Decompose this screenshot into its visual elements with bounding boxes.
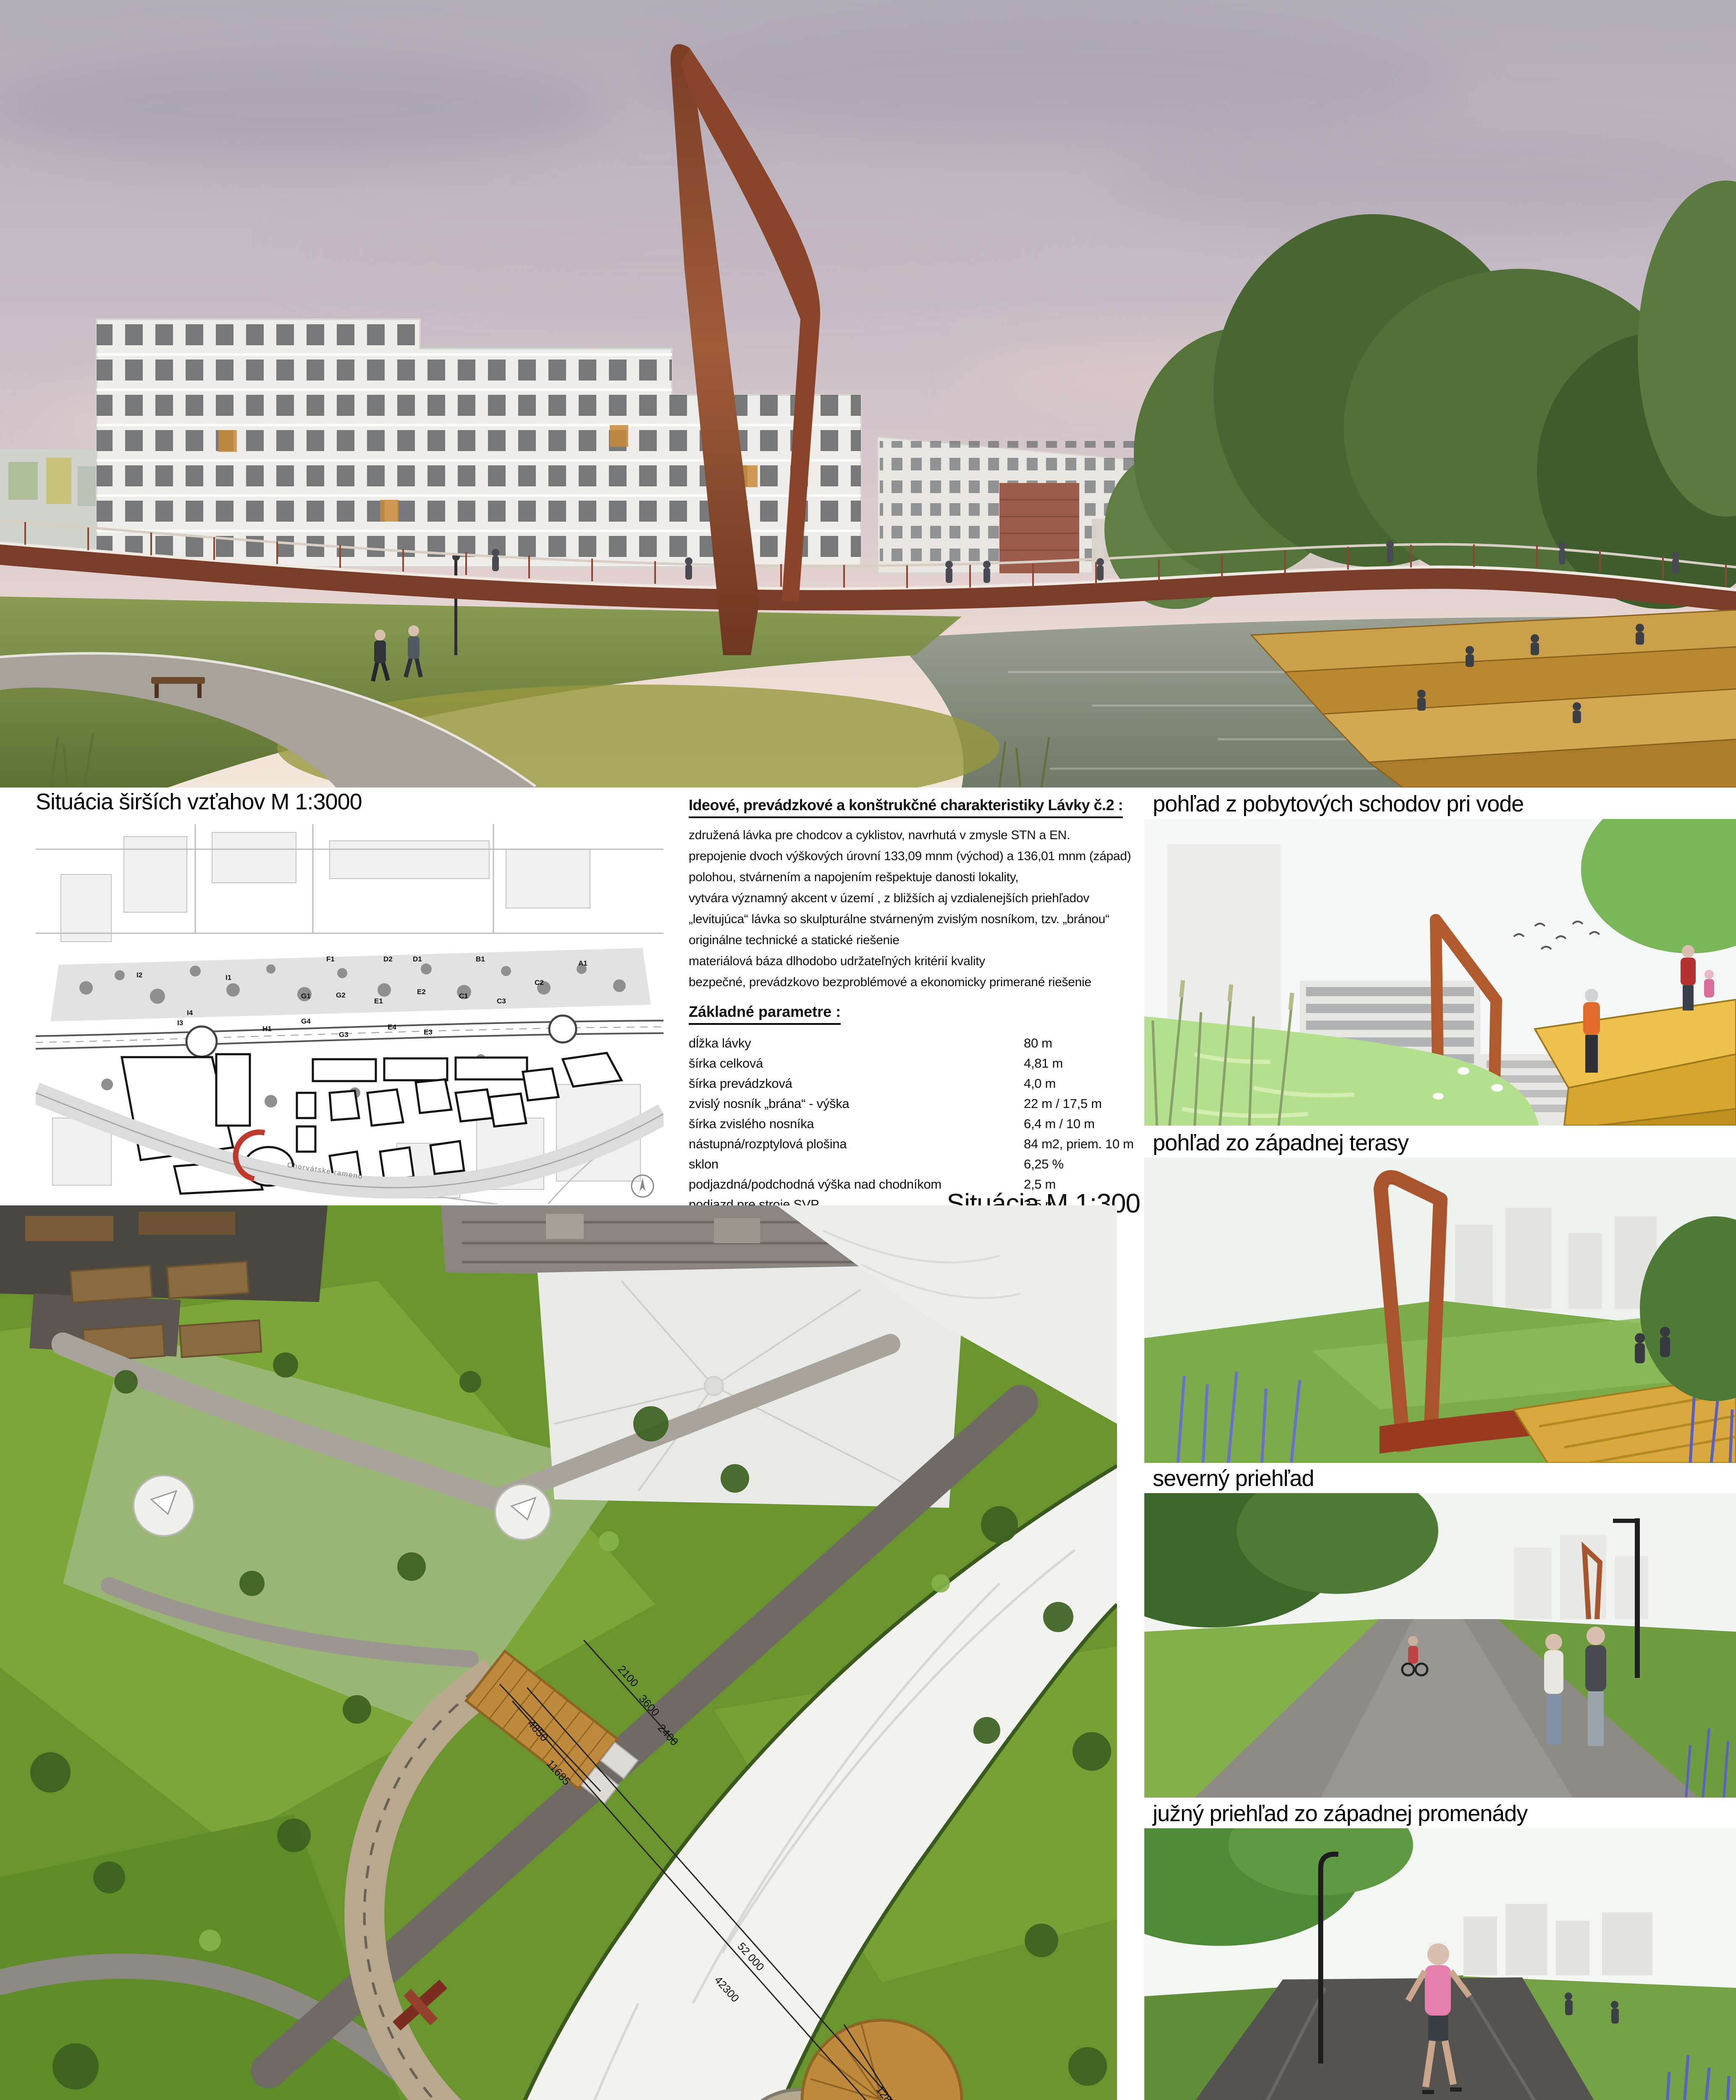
render-steps-at-water	[1144, 819, 1736, 1126]
render1-caption: pohľad z pobytových schodov pri vode	[1153, 791, 1524, 817]
characteristic-item: materiálová báza dlhodobo udržateľných k…	[689, 954, 1123, 975]
block-label: A1	[578, 959, 587, 968]
parameter-label: šírka celková	[689, 1056, 763, 1071]
site-plan-1-300-graphic: 4850 2100 3600 2400 11685 52 000 42300 5…	[0, 1205, 1117, 2100]
block-label: E4	[388, 1023, 396, 1032]
block-label: I4	[187, 1009, 193, 1017]
parameter-value: 6,4 m / 10 m	[1024, 1116, 1095, 1131]
block-label: E1	[374, 997, 383, 1005]
parameter-label: zvislý nosník „brána“ - výška	[689, 1096, 849, 1111]
block-label: E2	[417, 988, 426, 996]
block-label: G3	[339, 1031, 349, 1039]
block-label: C3	[497, 997, 506, 1005]
block-label: E3	[424, 1028, 433, 1037]
block-label: F1	[326, 955, 335, 963]
render2-caption: pohľad zo západnej terasy	[1153, 1130, 1408, 1156]
characteristic-item: vytvára významný akcent v území , z bliž…	[689, 891, 1123, 912]
block-label: I2	[136, 971, 142, 979]
parameter-value: 4,0 m	[1024, 1076, 1056, 1091]
parameter-row: šírka celková 4,81 m	[689, 1056, 1123, 1076]
parameter-value: 4,81 m	[1024, 1056, 1063, 1071]
block-label: I1	[226, 974, 231, 982]
tensile-canopy	[538, 1264, 966, 1508]
parameter-value: 80 m	[1024, 1036, 1052, 1051]
block-label: D1	[413, 955, 422, 963]
parameter-label: dĺžka lávky	[689, 1036, 751, 1050]
block-label: G1	[301, 992, 311, 1000]
characteristic-item: originálne technické a statické riešenie	[689, 933, 1123, 954]
parameter-label: šírka prevádzková	[689, 1076, 792, 1091]
site-plan-1-300: 4850 2100 3600 2400 11685 52 000 42300 5…	[0, 1205, 1117, 2100]
characteristics-heading: Ideové, prevádzkové a konštrukčné charak…	[689, 796, 1123, 818]
block-label: C1	[459, 992, 468, 1000]
parameter-row: dĺžka lávky 80 m	[689, 1036, 1123, 1056]
lamp-post	[1635, 1518, 1640, 1678]
characteristic-item: prepojenie dvoch výškových úrovní 133,09…	[689, 849, 1123, 870]
parameter-row: šírka zvislého nosníka 6,4 m / 10 m	[689, 1116, 1123, 1137]
parameter-value: 22 m / 17,5 m	[1024, 1096, 1102, 1111]
competition-poster: Situácia širších vzťahov M 1:3000	[0, 0, 1736, 2100]
characteristic-item: polohou, stvárnením a napojením rešpektu…	[689, 870, 1123, 891]
hero-render	[0, 0, 1736, 787]
characteristic-item: bezpečné, prevádzkovo bezproblémové a ek…	[689, 975, 1123, 996]
site-plan-1-3000-graphic	[36, 824, 663, 1204]
site-plan-1-3000: Chorvátske rameno I2 I1 I3 I4 H1 G1 G4 G…	[36, 824, 663, 1204]
parameter-row: šírka prevádzková 4,0 m	[689, 1076, 1123, 1096]
block-label: I3	[177, 1019, 183, 1027]
block-label: B1	[476, 955, 485, 963]
render4-caption: južný priehľad zo západnej promenády	[1153, 1801, 1527, 1827]
render-south-promenade	[1144, 1828, 1736, 2100]
parameter-row: nástupná/rozptylová plošina 84 m2, priem…	[689, 1137, 1123, 1157]
distant-buildings-left	[0, 449, 109, 550]
parameter-value: 84 m2, priem. 10 m	[1024, 1137, 1134, 1152]
render-west-terrace	[1144, 1158, 1736, 1463]
parameter-row: sklon 6,25 %	[689, 1157, 1123, 1177]
parameter-value: 6,25 %	[1024, 1157, 1064, 1172]
block-label: H1	[262, 1025, 272, 1033]
characteristic-item: združená lávka pre chodcov a cyklistov, …	[689, 828, 1123, 849]
parameter-label: sklon	[689, 1157, 719, 1171]
characteristics-bullets: združená lávka pre chodcov a cyklistov, …	[689, 828, 1123, 996]
render-north-view	[1144, 1493, 1736, 1798]
block-label: C2	[535, 979, 544, 987]
left-plan-caption: Situácia širších vzťahov M 1:3000	[36, 789, 362, 815]
characteristic-item: „levitujúca“ lávka so skulpturálne stvár…	[689, 912, 1123, 933]
render3-caption: severný priehľad	[1153, 1465, 1314, 1491]
block-label: G2	[336, 991, 346, 1000]
parameter-label: šírka zvislého nosníka	[689, 1116, 814, 1131]
hero-render-graphic	[0, 0, 1736, 787]
characteristics-block: Ideové, prevádzkové a konštrukčné charak…	[689, 796, 1123, 1217]
parameters-heading: Základné parametre :	[689, 1003, 841, 1025]
block-label: D2	[383, 955, 393, 963]
block-label: G4	[301, 1017, 311, 1026]
parameter-row: zvislý nosník „brána“ - výška 22 m / 17,…	[689, 1096, 1123, 1116]
parameter-label: nástupná/rozptylová plošina	[689, 1137, 847, 1151]
